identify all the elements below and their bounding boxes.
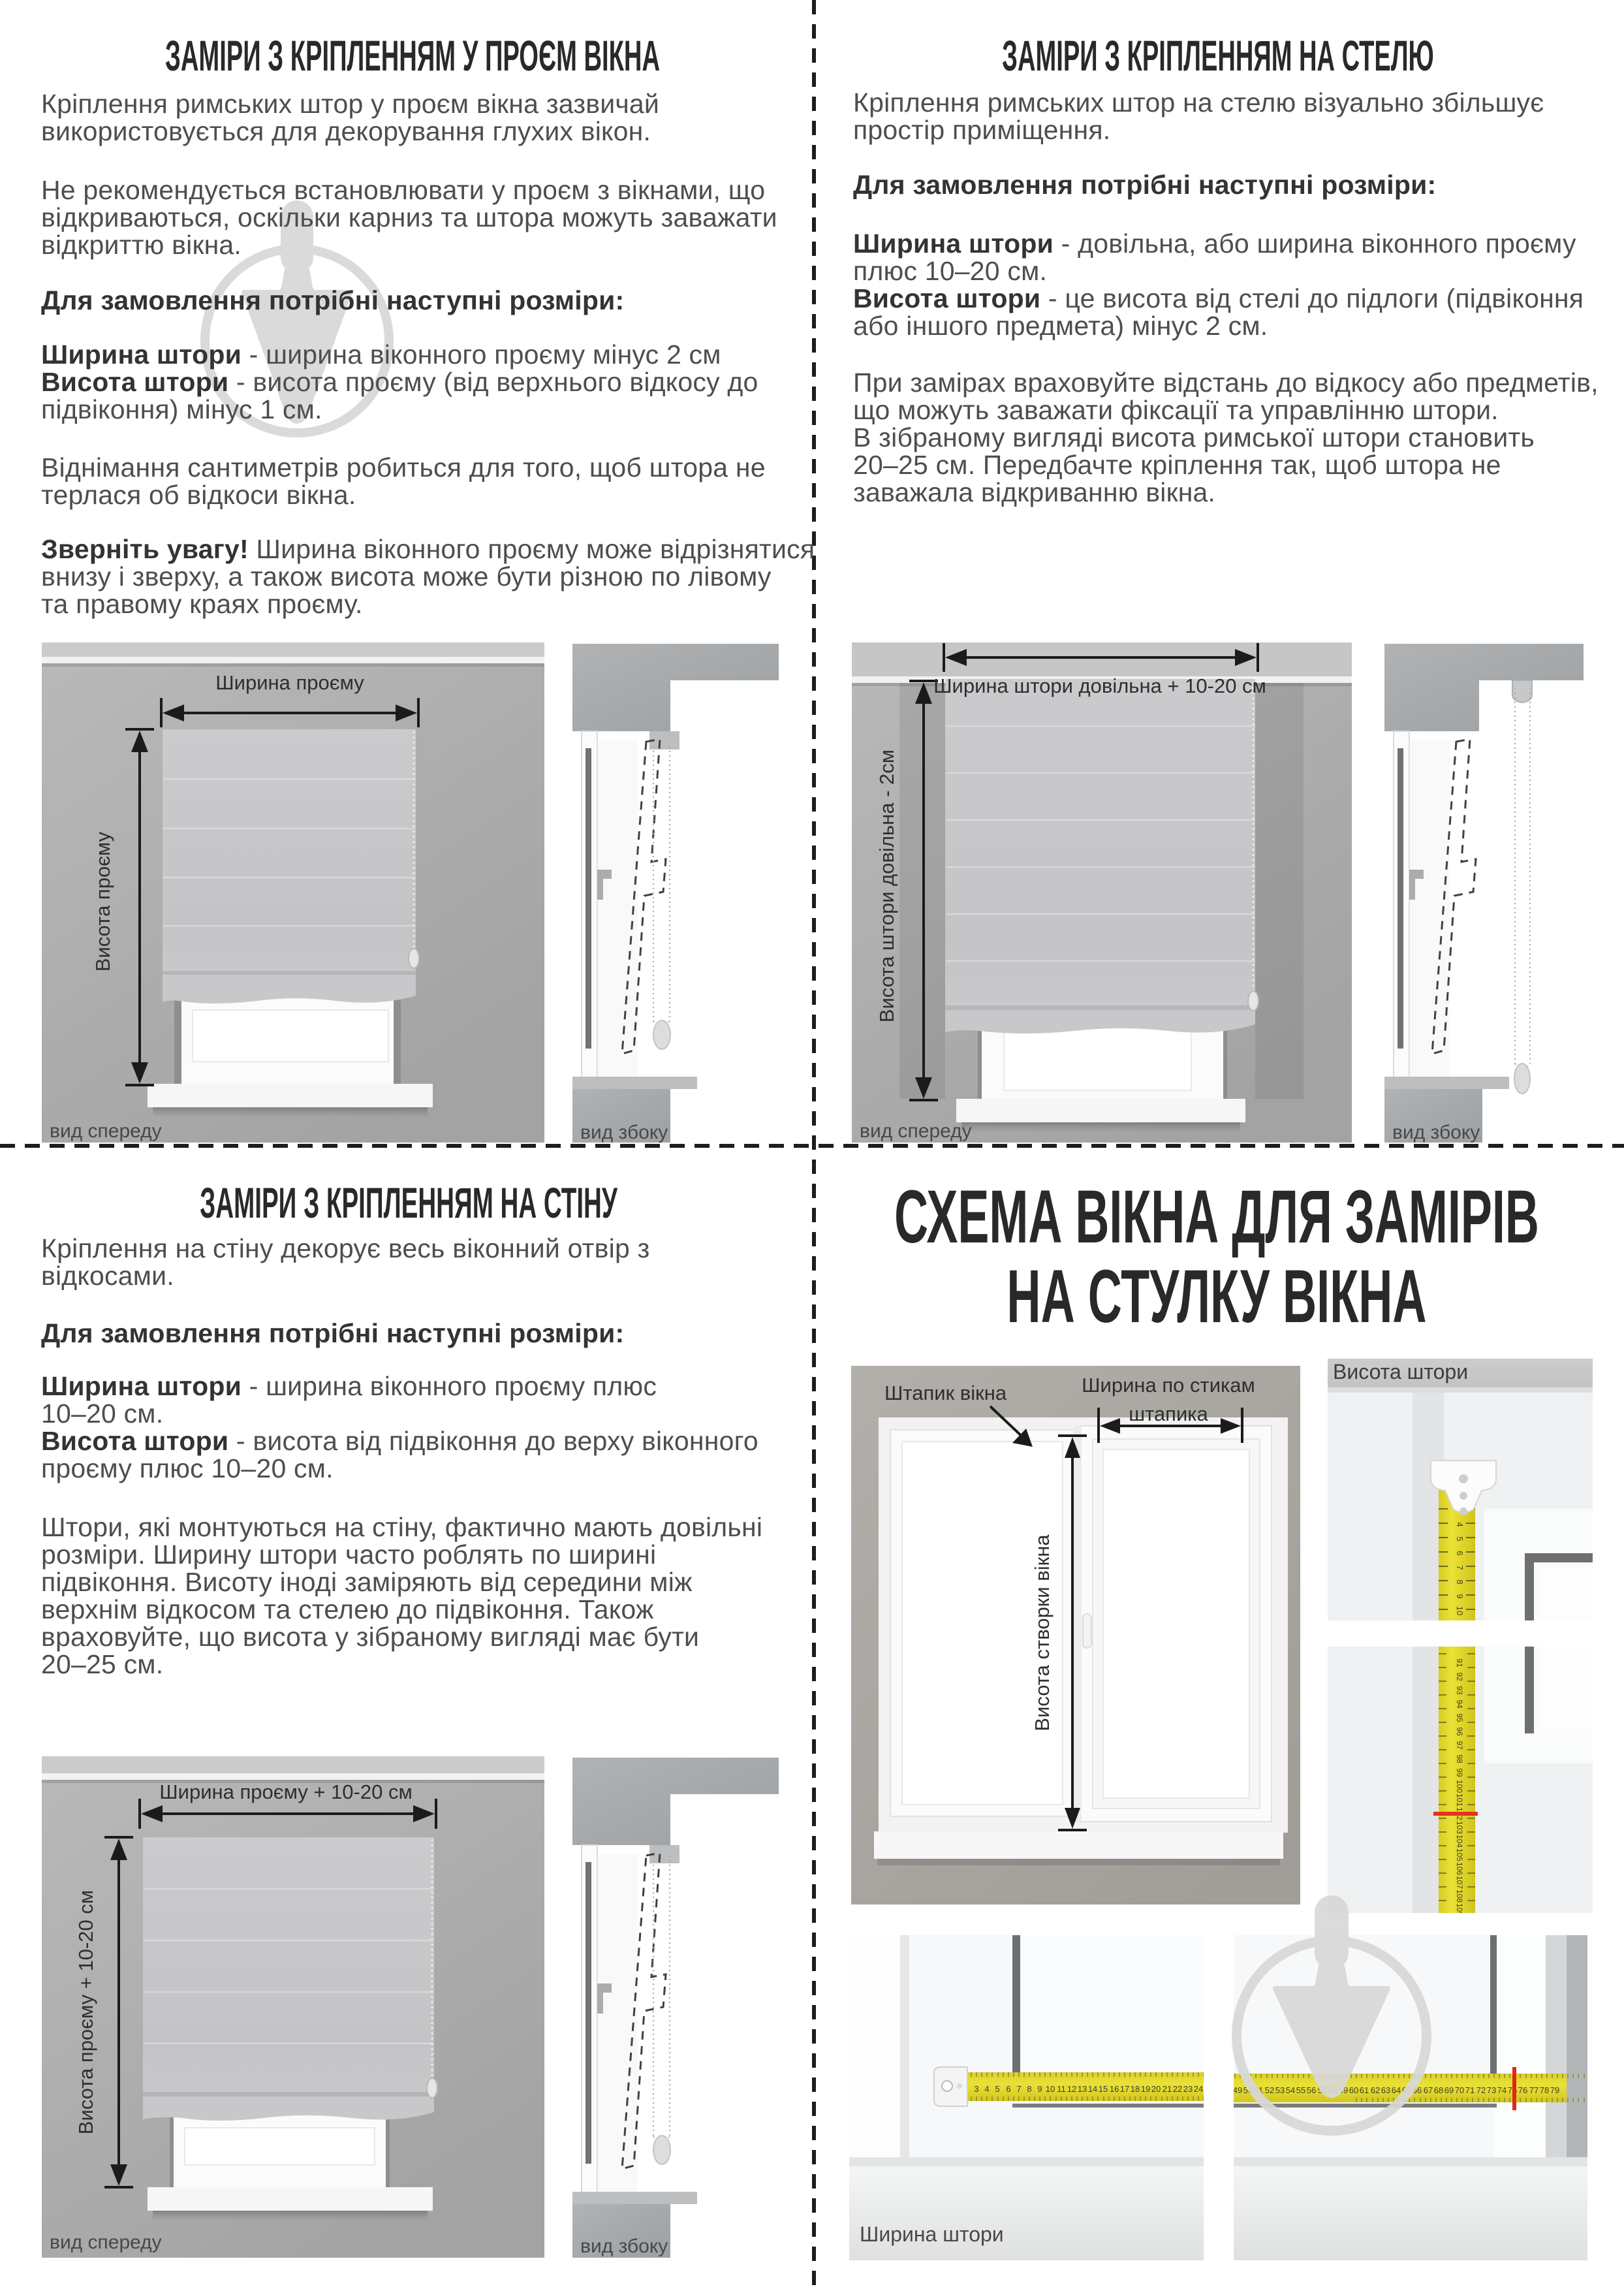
- svg-text:105: 105: [1455, 1848, 1464, 1861]
- svg-text:20: 20: [1151, 2084, 1161, 2094]
- svg-text:99: 99: [1455, 1768, 1464, 1777]
- svg-text:Ширина проєму: Ширина проєму: [215, 671, 364, 694]
- svg-text:9: 9: [1037, 2084, 1042, 2094]
- svg-text:95: 95: [1455, 1713, 1464, 1722]
- svg-text:Штапик вікна: Штапик вікна: [884, 1382, 1007, 1404]
- svg-text:18: 18: [1131, 2084, 1140, 2094]
- svg-text:78: 78: [1540, 2085, 1549, 2095]
- svg-text:13: 13: [1078, 2084, 1087, 2094]
- svg-text:вид збоку: вид збоку: [580, 1122, 668, 1143]
- svg-text:7: 7: [1455, 1565, 1465, 1570]
- svg-text:14: 14: [1088, 2084, 1097, 2094]
- svg-text:21: 21: [1163, 2084, 1172, 2094]
- svg-text:16: 16: [1110, 2084, 1119, 2094]
- svg-text:98: 98: [1455, 1754, 1464, 1763]
- svg-text:22: 22: [1173, 2084, 1182, 2094]
- svg-text:76: 76: [1518, 2085, 1527, 2095]
- svg-text:77: 77: [1529, 2085, 1538, 2095]
- svg-text:8: 8: [1027, 2084, 1031, 2094]
- svg-text:вид збоку: вид збоку: [580, 2236, 668, 2257]
- svg-text:15: 15: [1099, 2084, 1108, 2094]
- svg-text:10: 10: [1046, 2084, 1055, 2094]
- svg-text:вид спереду: вид спереду: [860, 1120, 972, 1142]
- svg-text:Ширина проєму + 10-20 см: Ширина проєму + 10-20 см: [159, 1780, 413, 1803]
- svg-text:23: 23: [1183, 2084, 1193, 2094]
- svg-text:5: 5: [1455, 1536, 1465, 1541]
- svg-text:71: 71: [1465, 2085, 1475, 2095]
- svg-text:91: 91: [1455, 1658, 1464, 1667]
- svg-text:109: 109: [1455, 1903, 1464, 1913]
- svg-text:24: 24: [1194, 2084, 1203, 2094]
- svg-text:96: 96: [1455, 1727, 1464, 1736]
- svg-text:Ширина штори: Ширина штори: [860, 2222, 1004, 2246]
- svg-text:вид збоку: вид збоку: [1392, 1122, 1480, 1143]
- svg-text:6: 6: [1006, 2084, 1010, 2094]
- svg-text:Висота проєму: Висота проєму: [91, 831, 114, 972]
- svg-text:93: 93: [1455, 1686, 1464, 1695]
- svg-text:Висота штори: Висота штори: [1333, 1360, 1468, 1383]
- svg-text:8: 8: [1455, 1579, 1465, 1584]
- svg-text:Ширина штори довільна + 10-20: Ширина штори довільна + 10-20 см: [933, 674, 1266, 697]
- svg-text:Висота проєму + 10-20 см: Висота проєму + 10-20 см: [74, 1890, 97, 2134]
- svg-text:6: 6: [1455, 1551, 1465, 1555]
- svg-text:штапика: штапика: [1129, 1402, 1208, 1425]
- svg-text:73: 73: [1487, 2085, 1496, 2095]
- svg-text:103: 103: [1455, 1821, 1464, 1834]
- svg-text:вид спереду: вид спереду: [50, 2232, 162, 2253]
- svg-text:70: 70: [1455, 2085, 1464, 2095]
- svg-text:Висота штори довільна - 2см: Висота штори довільна - 2см: [875, 750, 898, 1022]
- svg-text:Ширина по стикам: Ширина по стикам: [1082, 1374, 1255, 1397]
- svg-text:4: 4: [984, 2084, 989, 2094]
- svg-text:101: 101: [1455, 1793, 1464, 1807]
- svg-text:106: 106: [1455, 1862, 1464, 1875]
- svg-text:12: 12: [1067, 2084, 1076, 2094]
- svg-text:94: 94: [1455, 1699, 1464, 1709]
- svg-text:92: 92: [1455, 1672, 1464, 1681]
- svg-text:вид спереду: вид спереду: [50, 1120, 162, 1142]
- svg-text:9: 9: [1455, 1594, 1465, 1598]
- svg-text:97: 97: [1455, 1741, 1464, 1750]
- svg-text:74: 74: [1497, 2085, 1507, 2095]
- svg-text:107: 107: [1455, 1876, 1464, 1889]
- svg-text:7: 7: [1016, 2084, 1021, 2094]
- svg-text:3: 3: [974, 2084, 978, 2094]
- svg-text:17: 17: [1120, 2084, 1129, 2094]
- svg-text:104: 104: [1455, 1835, 1464, 1848]
- svg-text:79: 79: [1550, 2085, 1559, 2095]
- svg-text:Висота створки вікна: Висота створки вікна: [1031, 1534, 1054, 1731]
- svg-text:72: 72: [1476, 2085, 1486, 2095]
- svg-text:5: 5: [995, 2084, 999, 2094]
- svg-text:4: 4: [1455, 1522, 1465, 1526]
- svg-text:108: 108: [1455, 1889, 1464, 1903]
- svg-text:19: 19: [1141, 2084, 1150, 2094]
- svg-text:11: 11: [1057, 2084, 1066, 2094]
- svg-text:10: 10: [1455, 1606, 1465, 1615]
- svg-text:100: 100: [1455, 1780, 1464, 1793]
